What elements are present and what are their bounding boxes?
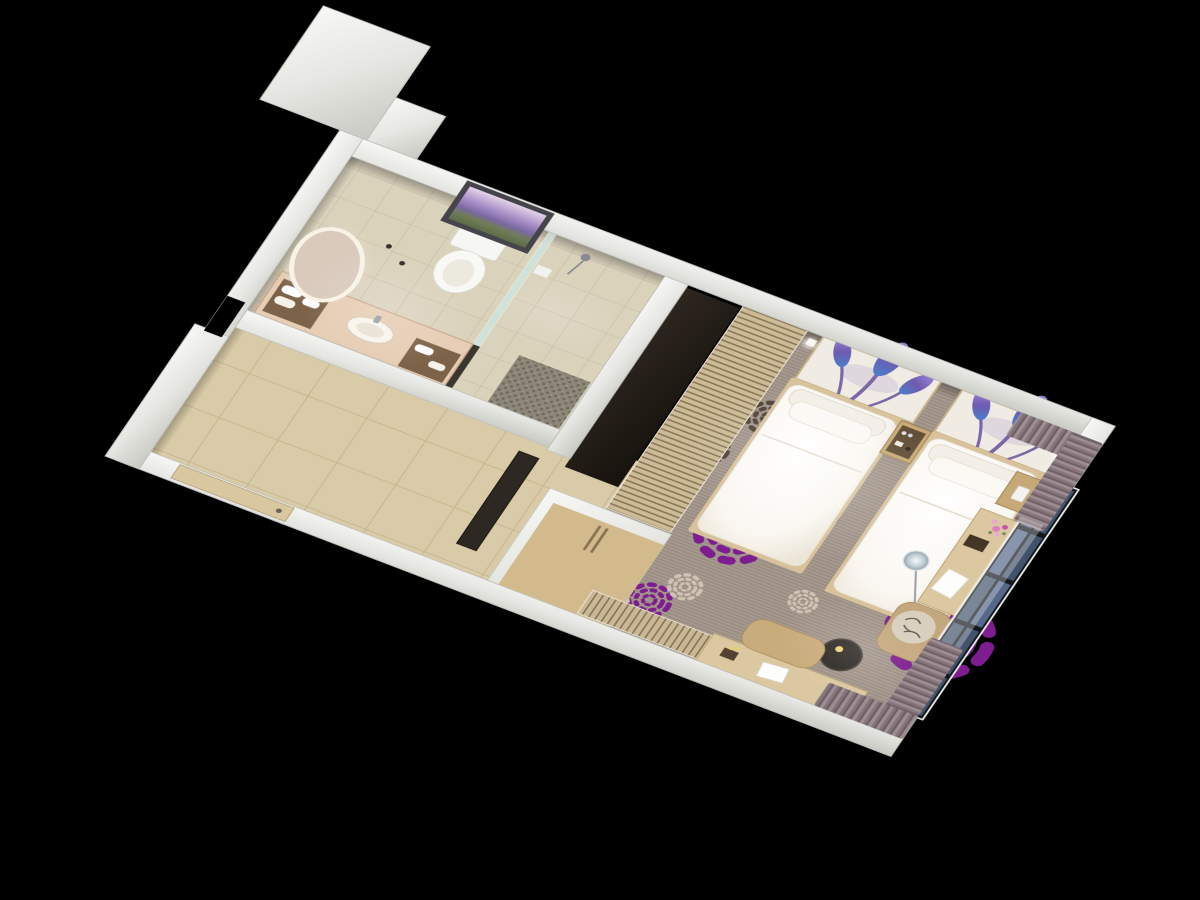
render-canvas [0, 0, 1200, 900]
room-3d-model [15, 0, 1200, 798]
floorplan-svg [15, 0, 1200, 798]
